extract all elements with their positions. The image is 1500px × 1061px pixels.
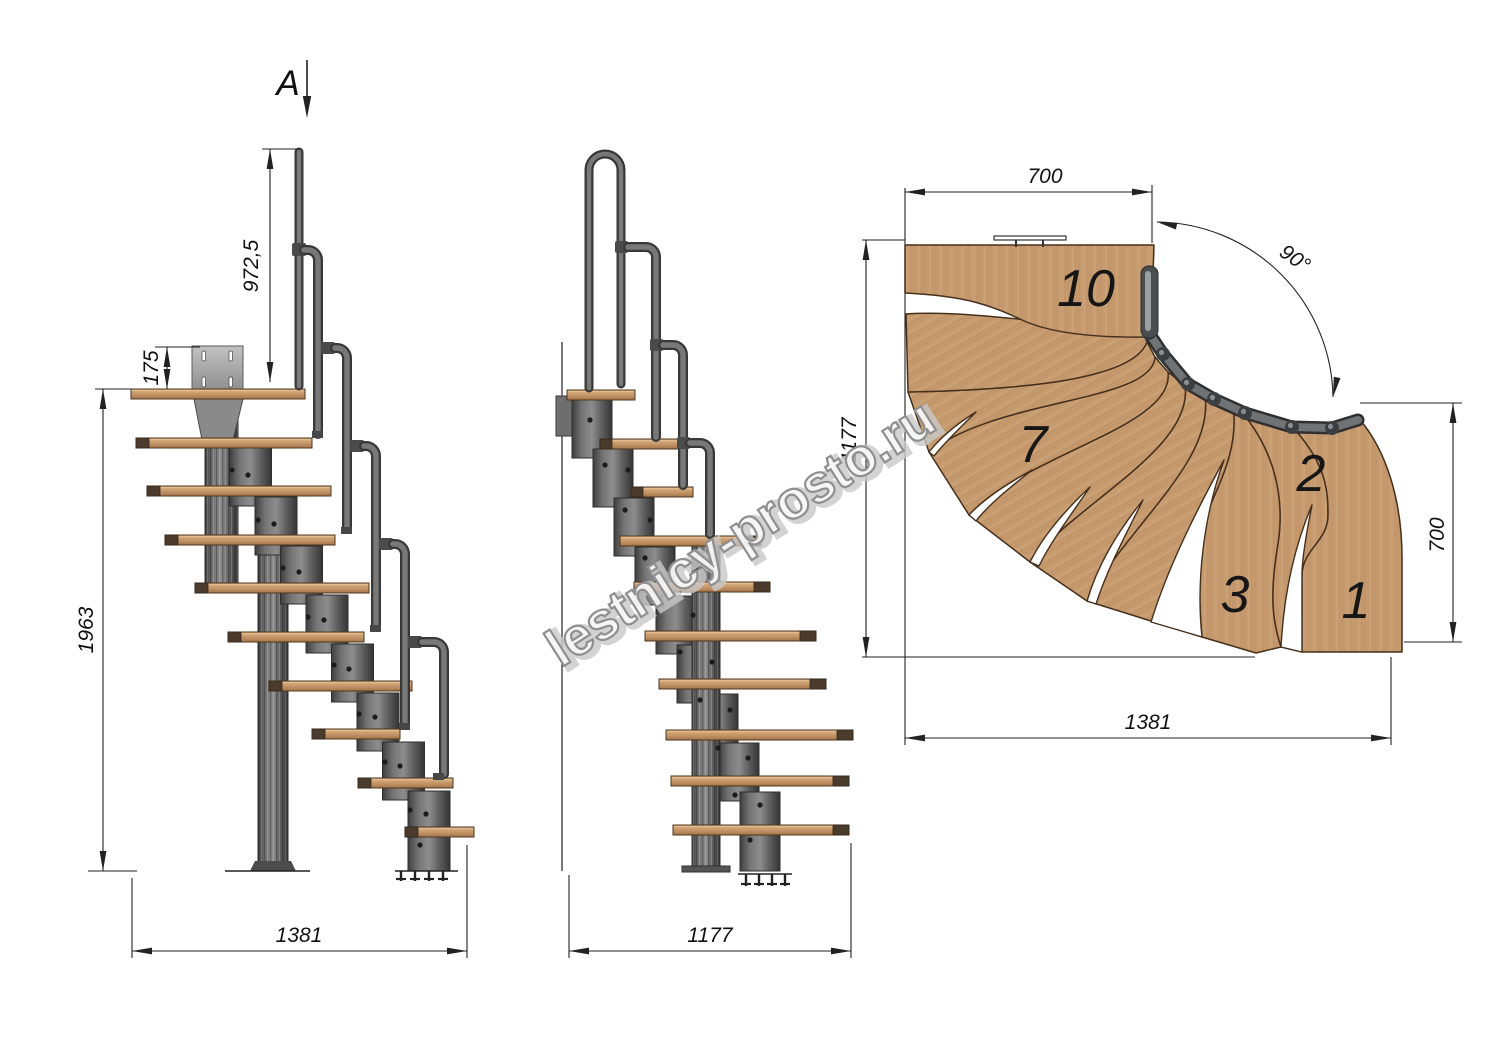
svg-text:1: 1 [1342, 572, 1371, 630]
svg-text:10: 10 [1057, 260, 1115, 318]
svg-text:972,5: 972,5 [240, 239, 263, 292]
svg-text:1381: 1381 [276, 924, 323, 947]
svg-text:175: 175 [140, 350, 163, 385]
svg-text:3: 3 [1221, 566, 1250, 624]
svg-text:1177: 1177 [687, 924, 733, 947]
svg-text:2: 2 [1296, 445, 1326, 503]
svg-text:1963: 1963 [75, 606, 98, 653]
svg-text:700: 700 [1027, 165, 1062, 188]
svg-text:A: A [274, 64, 299, 103]
svg-text:1381: 1381 [1125, 711, 1172, 734]
svg-text:7: 7 [1019, 416, 1050, 474]
svg-text:700: 700 [1426, 517, 1449, 552]
